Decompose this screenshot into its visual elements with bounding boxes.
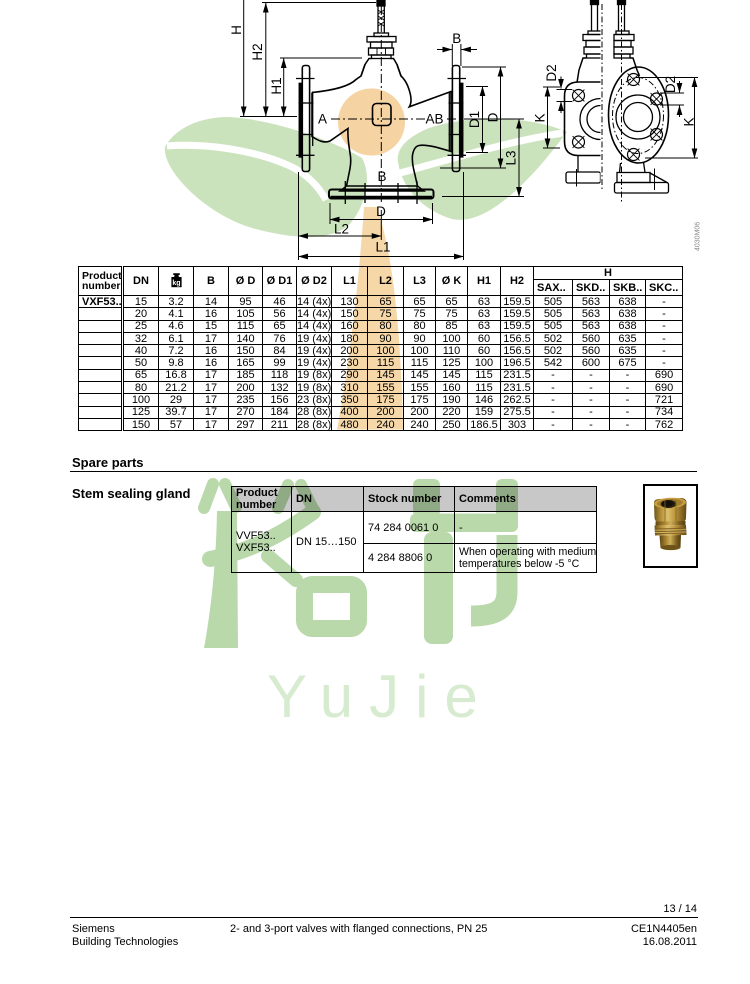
svg-text:YuJie: YuJie [267, 663, 494, 730]
